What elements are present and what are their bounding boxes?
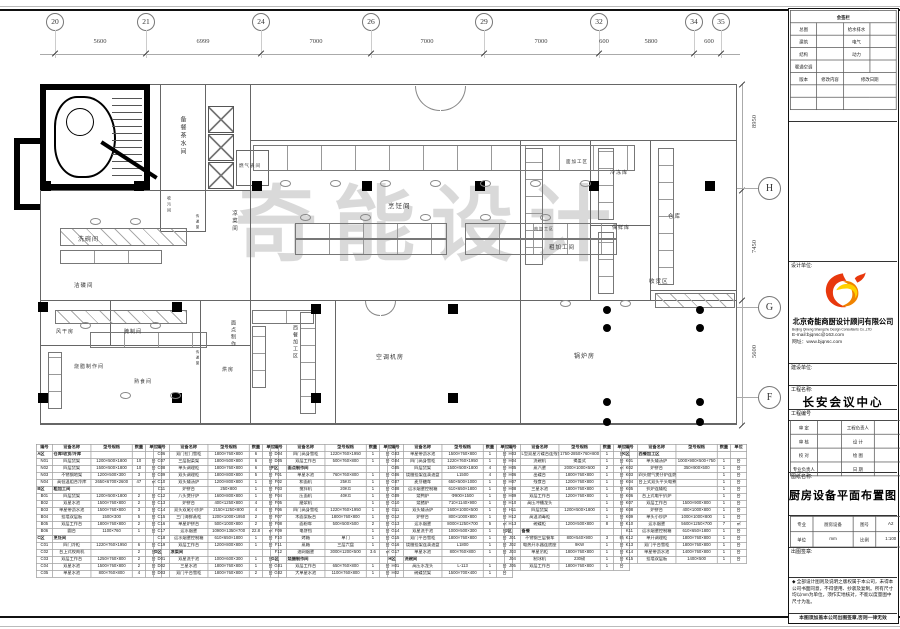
table-cell: 1 xyxy=(600,514,613,521)
plan-wall xyxy=(205,190,206,232)
table-cell: 双头矮汤炉 xyxy=(169,479,208,486)
table-cell: 230磅 xyxy=(559,556,600,563)
table-cell: 台 xyxy=(731,542,747,549)
table-cell: 4 xyxy=(249,500,262,507)
room-label: 保鲜库 xyxy=(612,224,630,231)
plan-wall xyxy=(160,84,161,190)
table-cell: 1800×760×800 xyxy=(91,521,132,528)
titleblock-cell xyxy=(817,85,843,97)
plan-wall xyxy=(650,140,651,300)
table-cell: 1220×760×1950 xyxy=(325,507,366,514)
plan-wall xyxy=(40,190,251,191)
room-label: 收货区 xyxy=(649,277,669,285)
dimension-text-vertical: 5600 xyxy=(751,345,758,358)
equipment-tag xyxy=(80,322,91,329)
table-cell: 1 xyxy=(600,458,613,465)
plan-wall xyxy=(250,84,251,300)
equipment-tag xyxy=(560,300,571,307)
titleblock-cell: 图号 xyxy=(853,516,876,531)
table-cell: 1800×760×800 xyxy=(676,542,717,549)
table-cell: 2000×1000×500 xyxy=(559,465,600,472)
table-cell: F10 xyxy=(270,535,286,542)
table-cell: 三星水池 xyxy=(169,563,208,570)
table-cell: H05 xyxy=(504,465,520,472)
table-cell: F02 xyxy=(270,479,286,486)
table-header-cell: 编号 xyxy=(387,444,403,451)
table-cell xyxy=(325,500,366,507)
equipment-bench xyxy=(55,310,187,324)
approval-section: 审 定工程负责人审 核设 计校 对绘 图专业负责人日 期 xyxy=(789,420,897,473)
dimension-text-vertical: 8950 xyxy=(751,115,758,128)
table-cell xyxy=(676,472,717,479)
table-cell: 3.6 xyxy=(366,549,379,556)
table-cell: 1400×760×800 xyxy=(676,549,717,556)
table-cell: 6 xyxy=(249,451,262,458)
table-cell: 1 xyxy=(483,514,496,521)
stair-wall xyxy=(14,204,40,210)
table-cell: 1 xyxy=(366,528,379,535)
table-cell: 1800×760×800 xyxy=(676,535,717,542)
table-cell: 1 xyxy=(717,514,730,521)
disclaimer-text: ◆ 全部设计图则及说明之版权属于本公司，未得本公司书面同意，不得使用、抄袭及复制… xyxy=(789,577,897,608)
table-cell: 双层工作台 xyxy=(286,563,325,570)
equipment-tag xyxy=(360,214,371,221)
table-cell: 三星水池 xyxy=(520,486,559,493)
table-cell: 4 xyxy=(483,465,496,472)
sheet-name: 厨房设备平面布置图 xyxy=(789,487,897,503)
room-label: 备餐茶水间 xyxy=(178,116,187,156)
company-name-cn: 北京奇能商厨设计顾问有限公司 xyxy=(789,317,897,327)
table-cell: 双星洗手池 xyxy=(403,528,442,535)
table-cell: 双门平台雪柜 xyxy=(169,570,208,577)
equipment-tag xyxy=(280,180,291,187)
table-cell: 1200×800×800 xyxy=(208,479,249,486)
dimension-text: 7000 xyxy=(535,38,548,45)
table-cell: 1 xyxy=(483,507,496,514)
table-cell: D01 xyxy=(153,556,169,563)
table-cell xyxy=(325,465,366,472)
room-label: 烹饪间 xyxy=(388,200,411,210)
room-label: 洁碟间 xyxy=(74,281,94,289)
stair-wall xyxy=(14,138,20,210)
table-cell: 1 xyxy=(600,542,613,549)
table-cell: 1800×760×800 xyxy=(442,535,483,542)
table-cell: B02 xyxy=(36,500,52,507)
table-cell: 650×760×800 xyxy=(325,563,366,570)
floor-plan: 备餐茶水间燃气表间烹饪间凉菜间洗碗间收污间传递窗传递窗面加工区冷冻库保鲜库仓库肉… xyxy=(0,0,900,629)
table-cell: 1 xyxy=(600,549,613,556)
column-square xyxy=(252,181,262,191)
table-cell: 500×760×800 xyxy=(325,458,366,465)
table-cell xyxy=(325,556,366,563)
equipment-tag xyxy=(120,392,131,399)
sheet-name-section: 图纸名称: 厨房设备平面布置图 xyxy=(789,472,897,516)
table-cell: H02 xyxy=(387,570,403,577)
table-cell: G10 xyxy=(387,500,403,507)
column-square xyxy=(311,304,321,314)
table-cell: 610×650×1800 xyxy=(442,486,483,493)
table-cell: 1500×760×800 xyxy=(91,500,132,507)
table-cell: 1 xyxy=(366,479,379,486)
table-cell: 单头矮汤炉 xyxy=(637,458,676,465)
table-cell: H11 xyxy=(504,507,520,514)
table-cell: G11 xyxy=(387,507,403,514)
table-cell: 台 xyxy=(731,486,747,493)
table-cell: Φ900×1500 xyxy=(442,493,483,500)
table-header-cell: 型号规格 xyxy=(442,444,483,451)
table-cell: 烧鸭炉 xyxy=(403,493,442,500)
titleblock-cell xyxy=(817,48,843,60)
table-cell: 1800×760×800 xyxy=(208,451,249,458)
equipment-tag xyxy=(130,218,141,225)
grid-bubble-F: F xyxy=(758,386,781,409)
equipment-tag xyxy=(380,180,391,187)
table-cell: C16 xyxy=(153,521,169,528)
table-cell: 蒸汽罩 xyxy=(520,465,559,472)
equipment-tag xyxy=(530,180,541,187)
table-cell xyxy=(600,528,613,535)
table-cell xyxy=(676,451,717,458)
table-cell: 搅拌机 xyxy=(286,486,325,493)
table-cell: K12 xyxy=(621,535,637,542)
table-cell: 5600×1250×700 xyxy=(676,521,717,528)
table-cell: 25KG xyxy=(325,479,366,486)
table-cell: 八头煲仔炉 xyxy=(169,493,208,500)
table-cell: 1 xyxy=(366,472,379,479)
grid-bubble-32: 32 xyxy=(590,13,608,31)
table-cell: 1 xyxy=(600,479,613,486)
table-cell: 2 xyxy=(366,521,379,528)
table-header-cell: 型号规格 xyxy=(91,444,132,451)
door-swing-arc xyxy=(441,86,466,111)
table-cell: H12 xyxy=(504,514,520,521)
table-cell: 麦芽糖车 xyxy=(403,479,442,486)
table-cell: 1000×900×500+750 xyxy=(676,458,717,465)
table-cell: G01 xyxy=(270,563,286,570)
table-cell: 10 xyxy=(132,465,145,472)
room-label: 腌制间 xyxy=(124,328,142,335)
table-cell: 单星带沥水池 xyxy=(52,507,91,514)
table-cell: F05 xyxy=(270,500,286,507)
column-round xyxy=(603,398,611,406)
table-cell: 1 xyxy=(483,563,496,570)
table-cell: 1000×500×300 xyxy=(442,528,483,535)
table-cell: 高压冲槽龙头 xyxy=(520,500,559,507)
table-cell: 台 xyxy=(731,549,747,556)
column-square xyxy=(134,181,144,191)
table-cell: 1200×500×300 xyxy=(91,472,132,479)
room-label: 风干房 xyxy=(56,328,74,335)
equipment-tag xyxy=(90,218,101,225)
equipment-bench xyxy=(295,239,447,255)
table-cell: D区 xyxy=(153,549,169,556)
table-cell: 1 xyxy=(249,563,262,570)
titleblock-cell xyxy=(817,23,843,35)
table-header-cell: 型号规格 xyxy=(325,444,366,451)
table-cell: 四门冷柜 xyxy=(52,542,91,549)
table-header-cell: 单位 xyxy=(731,444,747,451)
table-cell: 双层工作台 xyxy=(637,500,676,507)
table-cell: J05 xyxy=(504,563,520,570)
grid-bubble-26: 26 xyxy=(362,13,380,31)
table-cell: 四层货架 xyxy=(403,465,442,472)
grid-bubble-H: H xyxy=(758,177,781,200)
table-cell: G05 xyxy=(387,465,403,472)
table-cell: 6 xyxy=(132,542,145,549)
equipment-tag xyxy=(430,180,441,187)
table-header-cell: 设备名称 xyxy=(637,444,676,451)
titleblock-cell xyxy=(817,60,843,72)
dimension-text: 5600 xyxy=(94,38,107,45)
table-cell: H03 xyxy=(504,451,520,458)
table-cell: 1000×600×300 xyxy=(208,556,249,563)
table-cell: B04 xyxy=(36,514,52,521)
table-cell: H10 xyxy=(504,500,520,507)
table-cell: 双层工作台 xyxy=(169,542,208,549)
table-cell: 20KG xyxy=(325,486,366,493)
table-cell: 面点制作间 xyxy=(286,465,325,472)
table-header-cell: 设备名称 xyxy=(52,444,91,451)
table-cell: 1600×800×800 xyxy=(208,493,249,500)
column-round xyxy=(696,418,704,426)
table-cell: 台 xyxy=(731,479,747,486)
table-cell: 洗碗机 xyxy=(520,458,559,465)
table-cell: 3 xyxy=(132,472,145,479)
dimension-text: 600 xyxy=(704,38,714,45)
table-cell: J02 xyxy=(504,542,520,549)
seal-section: 出图签章: xyxy=(789,547,897,578)
table-cell: 8 xyxy=(600,521,613,528)
table-cell: 三层配菜架 xyxy=(169,458,208,465)
table-cell: 1 xyxy=(717,528,730,535)
table-cell: F01 xyxy=(270,472,286,479)
table-cell: 制冰机 xyxy=(520,556,559,563)
table-cell: K02 xyxy=(621,465,637,472)
table-cell: 单星水池 xyxy=(403,549,442,556)
table-cell: 400×1000×800 xyxy=(676,507,717,514)
table-cell: K10 xyxy=(621,521,637,528)
table-cell: 烧腊挂架连滴油盘 xyxy=(403,472,442,479)
equipment-tag xyxy=(150,322,161,329)
table-cell xyxy=(559,528,600,535)
table-cell: H13 xyxy=(504,521,520,528)
titleblock-cell: mm xyxy=(813,532,853,547)
table-cell: 1 xyxy=(600,507,613,514)
titleblock-cell xyxy=(843,60,869,72)
table-cell: 双层工作台 xyxy=(286,458,325,465)
table-cell: 台 xyxy=(731,514,747,521)
grid-bubble-34: 34 xyxy=(685,13,703,31)
titleblock-cell xyxy=(874,434,900,448)
table-cell: 炉拼台 xyxy=(637,465,676,472)
table-cell: 单星炉拼台 xyxy=(169,521,208,528)
elevator-shaft xyxy=(208,162,234,189)
project-name-label: 工程名称: xyxy=(789,385,897,394)
sign-section: 会签栏总图给水排水建筑电气结构动力暖通空调版本修改内容修改日期 xyxy=(789,9,897,122)
table-cell: C10 xyxy=(153,479,169,486)
table-cell: 2 xyxy=(132,493,145,500)
table-cell: 1 xyxy=(249,556,262,563)
table-cell: C04 xyxy=(36,563,52,570)
table-cell: 1750-2850×760×800 xyxy=(559,451,600,458)
table-cell: 1 xyxy=(483,528,496,535)
room-label: 肉加工区 xyxy=(534,226,554,232)
table-cell: K11 xyxy=(621,528,637,535)
titleblock-cell: 动力 xyxy=(843,48,869,60)
table-cell: 1200×800×800 xyxy=(208,542,249,549)
table-cell: 台 xyxy=(731,507,747,514)
table-cell xyxy=(325,528,366,535)
equipment-tag xyxy=(620,300,631,307)
titleblock-cell xyxy=(817,35,843,47)
table-cell: K09 xyxy=(621,514,637,521)
table-cell: 压面机 xyxy=(286,493,325,500)
equipment-table-block: 编号设备名称型号规格数量单位K区西餐加工区K01单头矮汤炉1000×900×50… xyxy=(621,444,739,620)
room-label: 燃气表间 xyxy=(239,163,261,169)
table-cell: 1 xyxy=(717,472,730,479)
titleblock-cell xyxy=(817,448,841,462)
table-cell xyxy=(91,486,132,493)
table-header-cell: 编号 xyxy=(36,444,52,451)
titleblock-cell xyxy=(870,23,896,35)
company-name-en: Beijing Qineng Shangchu Design Consultan… xyxy=(792,328,897,331)
column-round xyxy=(603,306,611,314)
room-label: 洗碗间 xyxy=(78,234,99,243)
table-cell: 单星带沥水池 xyxy=(637,549,676,556)
column-round xyxy=(603,324,611,332)
table-cell: 1 xyxy=(717,486,730,493)
table-cell: ㎡ xyxy=(731,521,747,528)
titleblock-cell xyxy=(870,60,896,72)
table-cell: 四门高身雪柜 xyxy=(286,507,325,514)
titleblock-cell: 修改日期 xyxy=(843,72,896,84)
table-cell: 710×1140×900 xyxy=(442,500,483,507)
table-header-cell: 数量 xyxy=(717,444,730,451)
table-cell: F07 xyxy=(270,514,286,521)
table-cell: 台 xyxy=(731,535,747,542)
table-cell: D04 xyxy=(270,451,286,458)
table-cell: 1 xyxy=(249,486,262,493)
column-square xyxy=(311,393,321,403)
table-header-cell: 编号 xyxy=(621,444,637,451)
table-cell: 台 xyxy=(731,528,747,535)
room-label: 传递窗 xyxy=(196,350,201,367)
table-cell: 1500×760×800 xyxy=(91,563,132,570)
table-cell: G16 xyxy=(387,542,403,549)
titleblock-cell xyxy=(874,448,900,462)
grid-bubble-G: G xyxy=(758,296,781,319)
grid-leader-line xyxy=(737,397,758,398)
titleblock-mini-table: 专业厨房设备图号A2单位mm比例1:100 xyxy=(790,516,900,547)
table-cell: 单头小炒炉 xyxy=(637,514,676,521)
table-cell: G06 xyxy=(387,472,403,479)
column-round xyxy=(696,398,704,406)
table-cell: G09 xyxy=(387,493,403,500)
equipment-bench xyxy=(48,352,62,409)
grid-bubble-29: 29 xyxy=(475,13,493,31)
equipment-tag xyxy=(420,214,431,221)
table-cell: 炉拼台 xyxy=(637,507,676,514)
table-cell xyxy=(208,549,249,556)
table-cell: 8000×1250×700 xyxy=(442,521,483,528)
titleblock-cell: 1:100 xyxy=(876,532,900,547)
table-header-cell: 型号规格 xyxy=(208,444,249,451)
table-cell: 三层六盘 xyxy=(325,542,366,549)
table-cell xyxy=(559,514,600,521)
table-cell: 2 xyxy=(132,500,145,507)
titleblock-cell: 工程负责人 xyxy=(841,420,874,434)
table-cell: 2150×1250×800 xyxy=(208,507,249,514)
table-header-cell: 编号 xyxy=(270,444,286,451)
table-cell: 双层工作台 xyxy=(520,493,559,500)
equipment-table-block: 编号设备名称型号规格数量单位H03L型双星污碟台连残食台1750-2850×76… xyxy=(504,444,622,620)
table-cell: 台 xyxy=(731,458,747,465)
column-square xyxy=(362,181,372,191)
table-cell: 350×900×500 xyxy=(676,465,717,472)
titleblock-cell xyxy=(870,48,896,60)
table-cell: 5 xyxy=(483,521,496,528)
table-cell: 台 xyxy=(731,493,747,500)
table-cell: 1100×760×800 xyxy=(325,570,366,577)
table-cell: L1500 xyxy=(442,472,483,479)
table-cell: 双星水池 xyxy=(52,563,91,570)
titleblock-cell: 单位 xyxy=(790,532,813,547)
table-cell: 1 xyxy=(483,570,496,577)
table-cell: F09 xyxy=(270,528,286,535)
table-cell: 3 xyxy=(600,535,613,542)
dimension-line-right xyxy=(742,84,743,425)
column-round xyxy=(696,324,704,332)
table-cell: 4 xyxy=(249,507,262,514)
table-cell: K08 xyxy=(621,507,637,514)
table-cell: 扒炉连矮柜 xyxy=(637,486,676,493)
table-cell: 1600×1000×500 xyxy=(442,507,483,514)
plan-wall xyxy=(236,150,237,186)
column-square xyxy=(38,393,48,403)
logo-swirl-icon xyxy=(817,270,869,312)
room-label: 锅炉房 xyxy=(574,351,595,360)
table-cell: 1 xyxy=(717,542,730,549)
dimension-text: 5800 xyxy=(645,38,658,45)
table-cell: C13 xyxy=(153,500,169,507)
dimension-text: 6999 xyxy=(197,38,210,45)
table-cell xyxy=(249,549,262,556)
table-cell: 烧腊挂架连滴油盘 xyxy=(403,542,442,549)
table-cell: 双头双尾小炒炉 xyxy=(169,507,208,514)
table-cell: 1800×760×800 xyxy=(208,465,249,472)
table-header-cell: 数量 xyxy=(132,444,145,451)
table-cell: 1 xyxy=(366,542,379,549)
stair-wall xyxy=(40,84,150,90)
table-cell: 挂墙双层板 xyxy=(52,514,91,521)
plan-wall xyxy=(736,84,737,425)
table-cell: 台 xyxy=(731,556,747,563)
table-cell: 烧猪炉 xyxy=(403,500,442,507)
table-header-cell: 编号 xyxy=(504,444,520,451)
table-cell: 备餐 xyxy=(520,528,559,535)
table-cell: 1 xyxy=(249,493,262,500)
table-cell: 5 xyxy=(132,514,145,521)
table-cell: C09 xyxy=(153,472,169,479)
seal-label: 出图签章: xyxy=(789,547,897,556)
table-cell: K13 xyxy=(621,542,637,549)
table-cell: 高低温组合冷库 xyxy=(52,479,91,486)
titleblock-cell xyxy=(870,35,896,47)
titleblock-cell: 会签栏 xyxy=(790,10,896,22)
table-cell xyxy=(483,556,496,563)
table-cell: 3 xyxy=(132,507,145,514)
table-cell: 1 xyxy=(717,500,730,507)
